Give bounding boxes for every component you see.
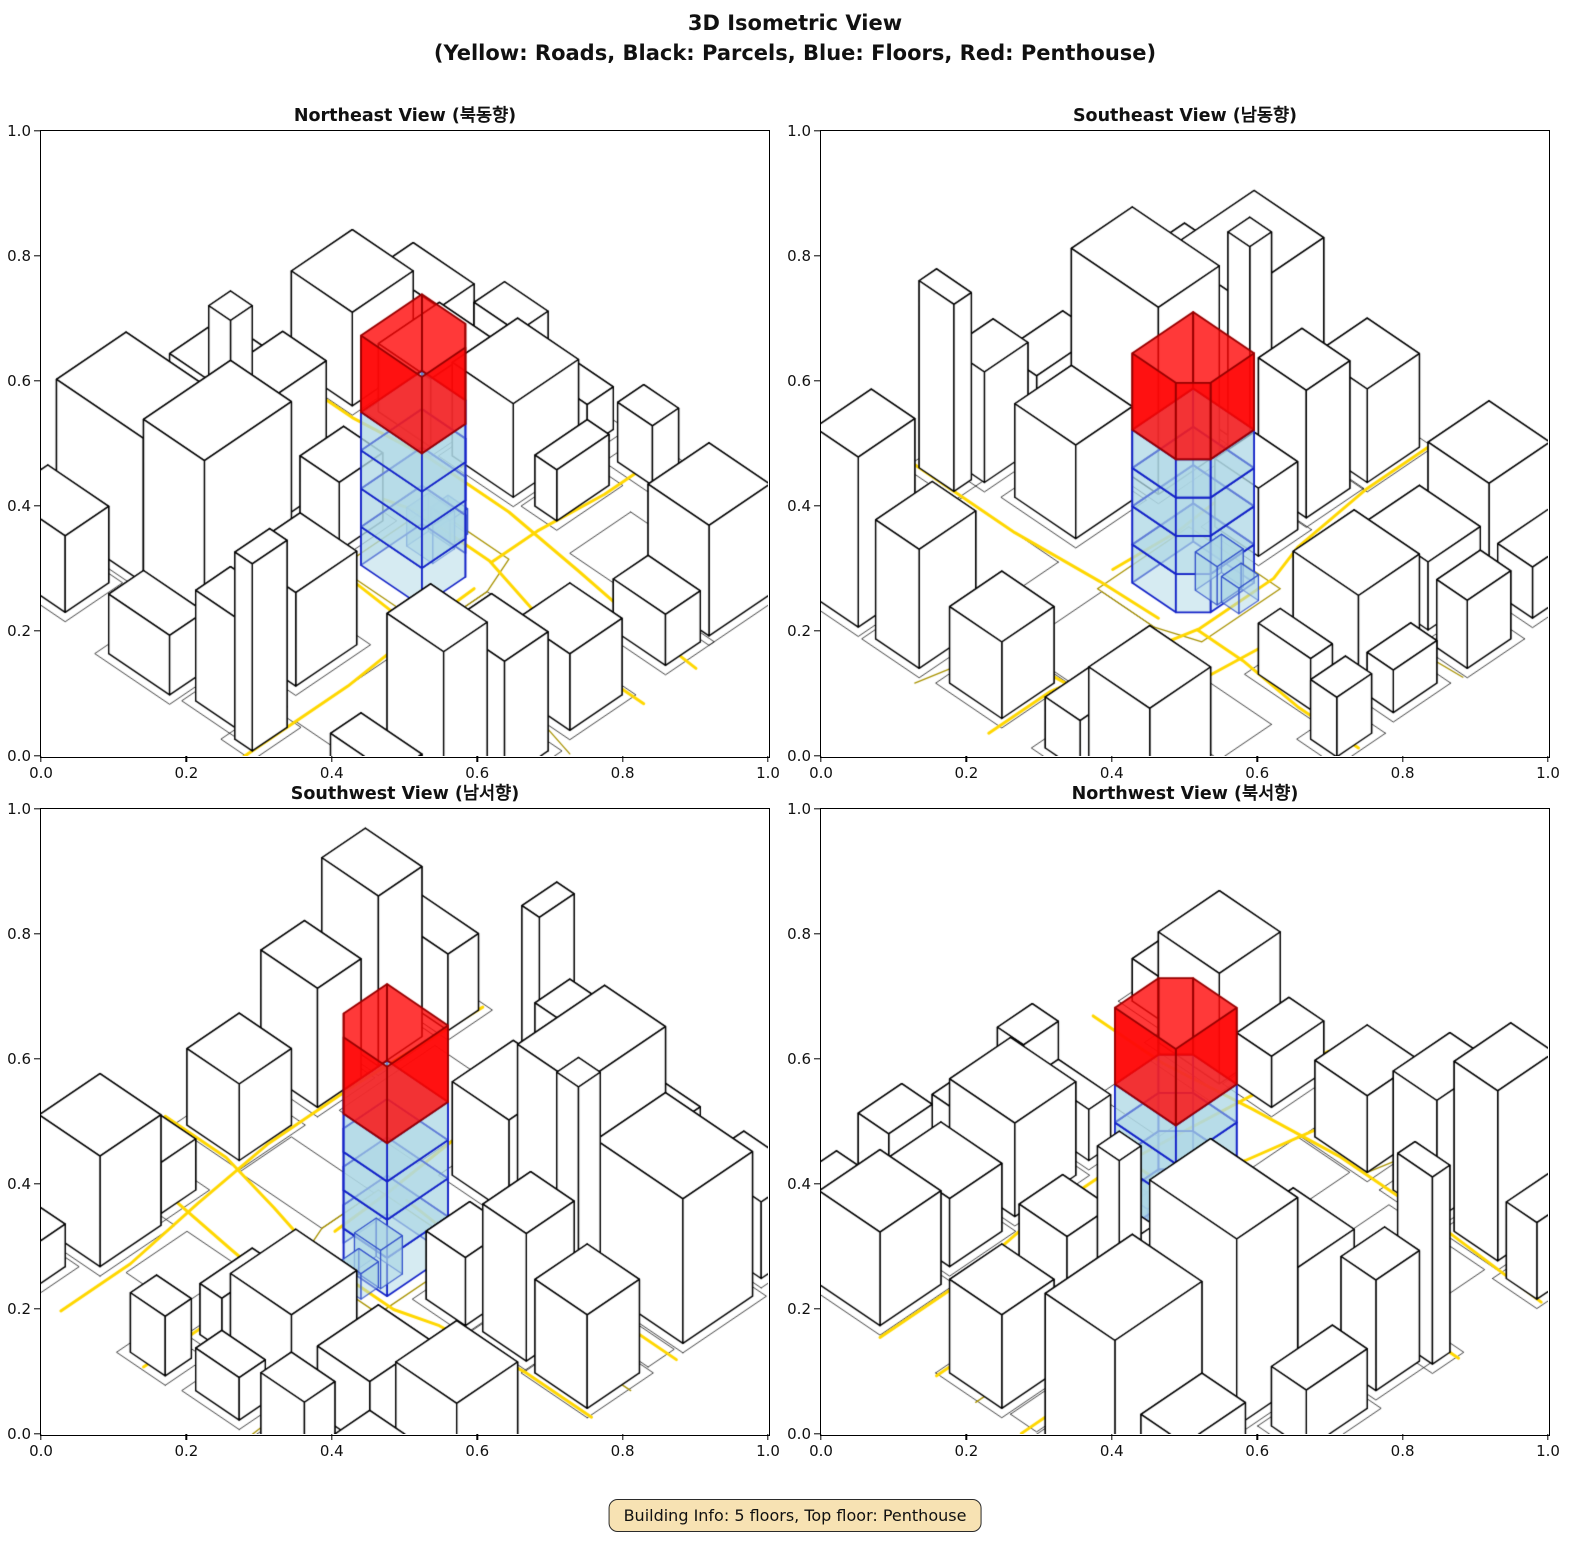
- y-tick-mark: [814, 505, 820, 506]
- y-tick-label: 1.0: [787, 122, 811, 140]
- x-tick-mark: [966, 1434, 967, 1440]
- y-tick-label: 0.2: [787, 622, 811, 640]
- x-tick-label: 0.0: [809, 1442, 833, 1460]
- y-tick-label: 0.6: [787, 372, 811, 390]
- x-tick-mark: [1402, 756, 1403, 762]
- x-tick-label: 0.8: [611, 1442, 635, 1460]
- y-tick-label: 0.4: [7, 497, 31, 515]
- figure-title-line1: 3D Isometric View: [0, 8, 1590, 38]
- y-tick-mark: [814, 380, 820, 381]
- x-tick-label: 0.2: [174, 1442, 198, 1460]
- y-tick-mark: [34, 1308, 40, 1309]
- y-tick-label: 0.4: [7, 1175, 31, 1193]
- x-tick-label: 1.0: [756, 1442, 780, 1460]
- subplot-title-northeast: Northeast View (북동향): [41, 102, 769, 127]
- x-tick-mark: [1111, 756, 1112, 762]
- x-tick-label: 0.6: [1245, 1442, 1269, 1460]
- building-info-badge: Building Info: 5 floors, Top floor: Pent…: [609, 1499, 982, 1532]
- y-tick-label: 0.2: [787, 1300, 811, 1318]
- y-tick-label: 0.0: [7, 747, 31, 765]
- y-tick-mark: [814, 1058, 820, 1059]
- y-tick-mark: [814, 808, 820, 809]
- y-tick-mark: [814, 130, 820, 131]
- x-tick-label: 0.0: [29, 1442, 53, 1460]
- x-tick-mark: [476, 756, 477, 762]
- x-tick-mark: [40, 756, 41, 762]
- x-tick-mark: [476, 1434, 477, 1440]
- y-tick-label: 0.8: [7, 247, 31, 265]
- y-tick-label: 0.6: [7, 372, 31, 390]
- southeast-view-canvas: [821, 131, 1548, 756]
- x-tick-mark: [966, 756, 967, 762]
- y-tick-mark: [814, 755, 820, 756]
- x-tick-label: 0.4: [320, 1442, 344, 1460]
- y-tick-mark: [814, 255, 820, 256]
- y-tick-mark: [34, 630, 40, 631]
- x-tick-mark: [186, 1434, 187, 1440]
- figure-title: 3D Isometric View (Yellow: Roads, Black:…: [0, 8, 1590, 69]
- southwest-view-canvas: [41, 809, 768, 1434]
- y-tick-label: 0.8: [7, 925, 31, 943]
- x-tick-label: 0.6: [465, 1442, 489, 1460]
- x-tick-mark: [40, 1434, 41, 1440]
- x-tick-label: 0.8: [1391, 1442, 1415, 1460]
- y-tick-mark: [34, 130, 40, 131]
- y-tick-mark: [814, 1433, 820, 1434]
- x-tick-mark: [820, 1434, 821, 1440]
- y-tick-mark: [34, 808, 40, 809]
- subplot-northwest: Northwest View (북서향) 0.00.00.20.20.40.40…: [820, 808, 1550, 1436]
- northwest-view-canvas: [821, 809, 1548, 1434]
- x-tick-mark: [622, 756, 623, 762]
- y-tick-label: 0.2: [7, 622, 31, 640]
- x-tick-mark: [331, 756, 332, 762]
- y-tick-mark: [34, 1058, 40, 1059]
- subplot-title-southeast: Southeast View (남동향): [821, 102, 1549, 127]
- subplot-northeast: Northeast View (북동향) 0.00.00.20.20.40.40…: [40, 130, 770, 758]
- x-tick-mark: [1547, 756, 1548, 762]
- y-tick-mark: [814, 630, 820, 631]
- subplot-southeast: Southeast View (남동향) 0.00.00.20.20.40.40…: [820, 130, 1550, 758]
- y-tick-mark: [34, 1433, 40, 1434]
- subplot-title-southwest: Southwest View (남서향): [41, 780, 769, 805]
- figure-title-line2: (Yellow: Roads, Black: Parcels, Blue: Fl…: [0, 38, 1590, 68]
- x-tick-mark: [331, 1434, 332, 1440]
- x-tick-label: 1.0: [1536, 1442, 1560, 1460]
- y-tick-label: 1.0: [7, 122, 31, 140]
- northeast-view-canvas: [41, 131, 768, 756]
- x-tick-mark: [1402, 1434, 1403, 1440]
- y-tick-mark: [34, 255, 40, 256]
- x-tick-mark: [1256, 756, 1257, 762]
- y-tick-label: 0.4: [787, 497, 811, 515]
- y-tick-label: 1.0: [7, 800, 31, 818]
- y-tick-label: 0.0: [7, 1425, 31, 1443]
- y-tick-mark: [814, 1308, 820, 1309]
- figure: 3D Isometric View (Yellow: Roads, Black:…: [0, 0, 1590, 1560]
- y-tick-mark: [814, 933, 820, 934]
- y-tick-mark: [814, 1183, 820, 1184]
- x-tick-mark: [622, 1434, 623, 1440]
- x-tick-label: 0.2: [954, 1442, 978, 1460]
- y-tick-label: 0.4: [787, 1175, 811, 1193]
- y-tick-label: 0.8: [787, 247, 811, 265]
- y-tick-label: 0.0: [787, 1425, 811, 1443]
- x-tick-mark: [767, 756, 768, 762]
- y-tick-label: 0.0: [787, 747, 811, 765]
- y-tick-mark: [34, 755, 40, 756]
- x-tick-mark: [1256, 1434, 1257, 1440]
- subplot-southwest: Southwest View (남서향) 0.00.00.20.20.40.40…: [40, 808, 770, 1436]
- y-tick-mark: [34, 505, 40, 506]
- x-tick-mark: [1111, 1434, 1112, 1440]
- x-tick-label: 0.4: [1100, 1442, 1124, 1460]
- x-tick-mark: [1547, 1434, 1548, 1440]
- y-tick-label: 1.0: [787, 800, 811, 818]
- y-tick-label: 0.8: [787, 925, 811, 943]
- y-tick-mark: [34, 933, 40, 934]
- y-tick-label: 0.6: [7, 1050, 31, 1068]
- x-tick-mark: [186, 756, 187, 762]
- subplot-title-northwest: Northwest View (북서향): [821, 780, 1549, 805]
- x-tick-mark: [767, 1434, 768, 1440]
- y-tick-mark: [34, 380, 40, 381]
- y-tick-label: 0.6: [787, 1050, 811, 1068]
- y-tick-label: 0.2: [7, 1300, 31, 1318]
- x-tick-mark: [820, 756, 821, 762]
- y-tick-mark: [34, 1183, 40, 1184]
